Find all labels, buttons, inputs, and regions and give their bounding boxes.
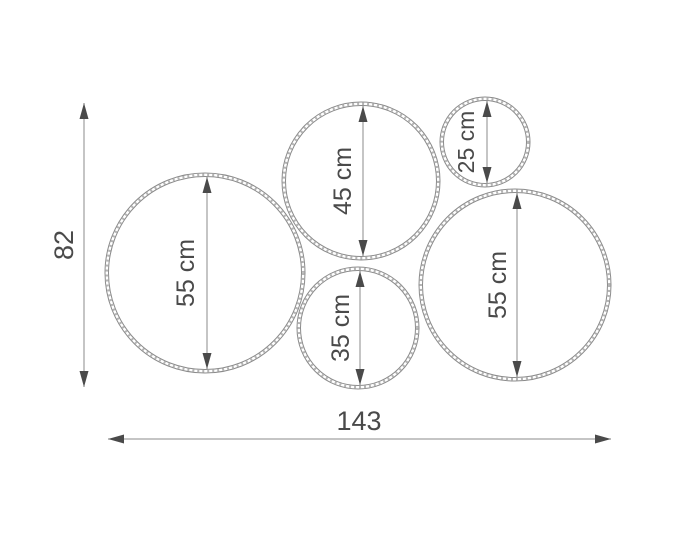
arrowhead-down-icon — [483, 167, 492, 183]
circle-45-top-group: 45 cm — [282, 102, 440, 260]
width-dimension-group: 143 — [108, 406, 611, 444]
arrowhead-down-icon — [356, 369, 365, 385]
height-dimension-label: 82 — [49, 230, 79, 260]
arrowhead-right-icon — [595, 435, 611, 444]
arrowhead-down-icon — [359, 240, 368, 256]
circle-25-top-right-group: 25 cm — [440, 97, 530, 187]
arrowhead-up-icon — [359, 106, 368, 122]
arrowhead-down-icon — [80, 371, 89, 387]
circle-ring-inner — [286, 106, 437, 257]
circle-ring-hatch — [284, 104, 439, 259]
diameter-label: 55 cm — [484, 251, 512, 319]
width-dimension-label: 143 — [336, 406, 381, 436]
dimension-diagram: 55 cm 45 cm 25 cm — [0, 0, 688, 550]
circle-55-left-group: 55 cm — [105, 173, 305, 373]
arrowhead-up-icon — [356, 271, 365, 287]
arrowhead-down-icon — [513, 361, 522, 377]
arrowhead-left-icon — [108, 435, 124, 444]
diameter-label: 55 cm — [172, 239, 200, 307]
diameter-label: 45 cm — [329, 147, 357, 215]
circle-ring-hatch — [107, 175, 304, 372]
dimension-diagram-canvas: 55 cm 45 cm 25 cm — [0, 0, 688, 550]
diameter-label: 35 cm — [327, 294, 355, 362]
arrowhead-up-icon — [203, 177, 212, 193]
circle-ring-inner — [301, 271, 416, 386]
circle-ring-inner — [109, 177, 302, 370]
height-dimension-group: 82 — [49, 103, 89, 387]
arrowhead-down-icon — [203, 353, 212, 369]
circle-ring-hatch — [421, 191, 610, 380]
circle-35-bottom-group: 35 cm — [297, 267, 419, 389]
diameter-label: 25 cm — [453, 111, 479, 174]
arrowhead-up-icon — [483, 101, 492, 117]
circle-55-right-group: 55 cm — [419, 189, 611, 381]
arrowhead-up-icon — [513, 193, 522, 209]
arrowhead-up-icon — [80, 103, 89, 119]
circle-ring-inner — [423, 193, 608, 378]
